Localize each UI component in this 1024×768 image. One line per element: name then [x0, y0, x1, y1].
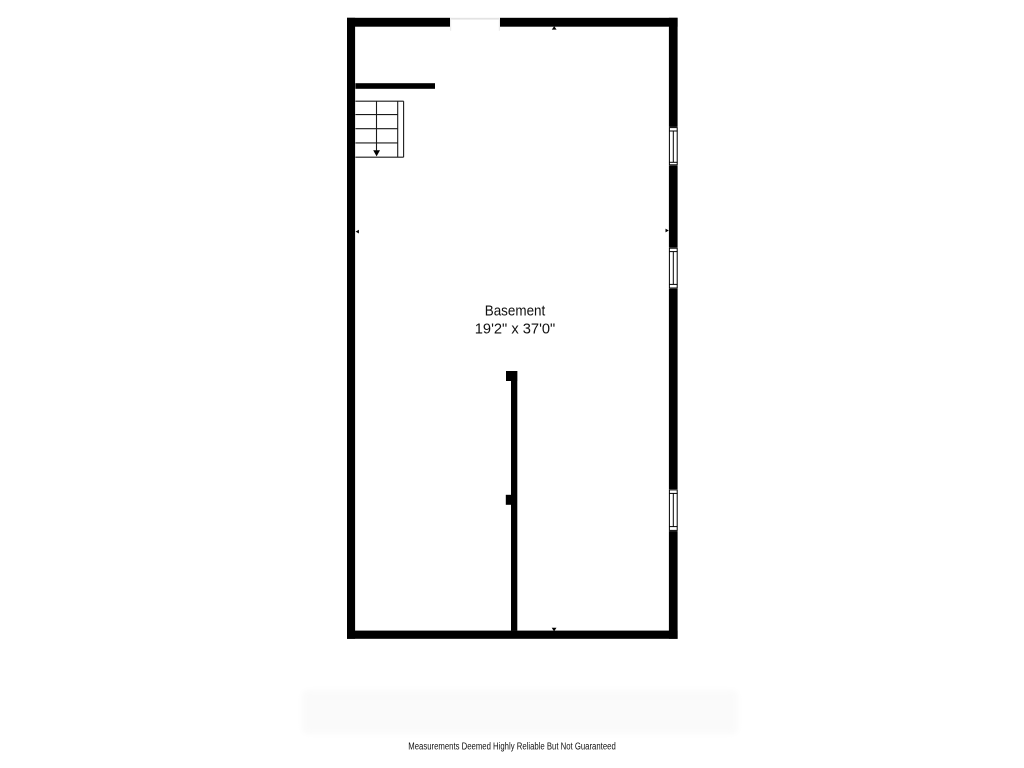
svg-text:19'2" x 37'0": 19'2" x 37'0" [475, 321, 556, 337]
svg-text:Measurements Deemed Highly Rel: Measurements Deemed Highly Reliable But … [408, 742, 616, 753]
svg-text:Basement: Basement [485, 304, 546, 320]
